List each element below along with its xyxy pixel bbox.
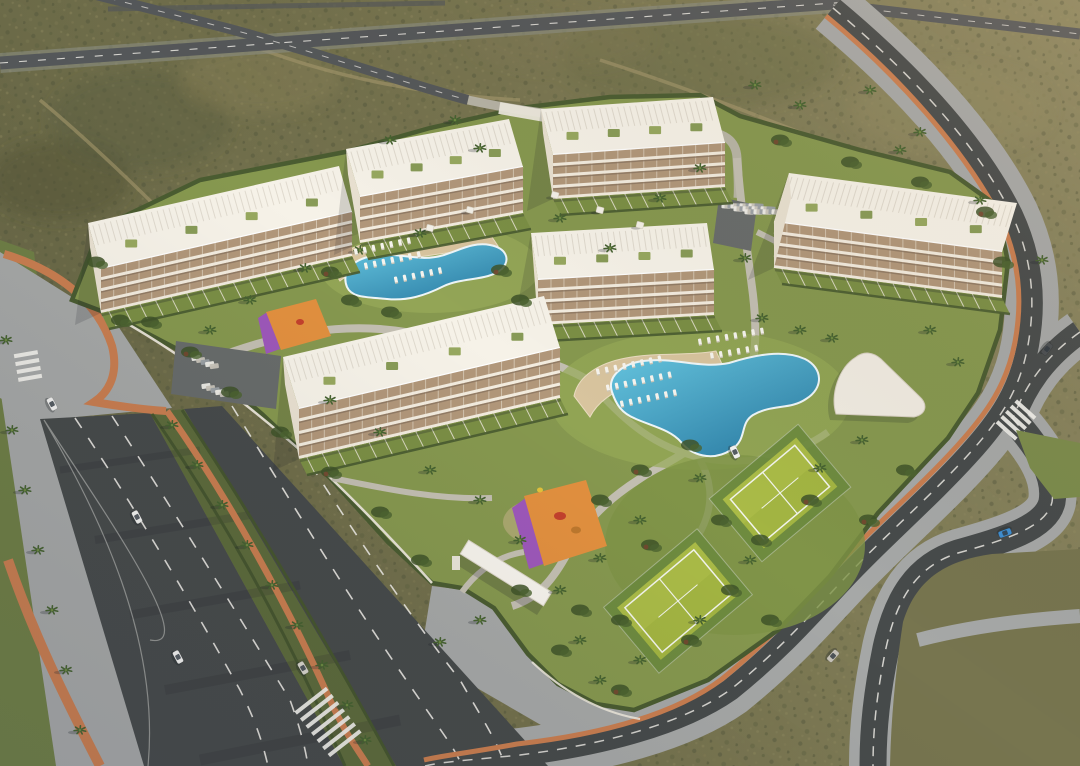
aerial-site-render	[0, 0, 1080, 766]
aerial-render-viewport	[0, 0, 1080, 766]
dusk-atmosphere	[0, 0, 1080, 766]
